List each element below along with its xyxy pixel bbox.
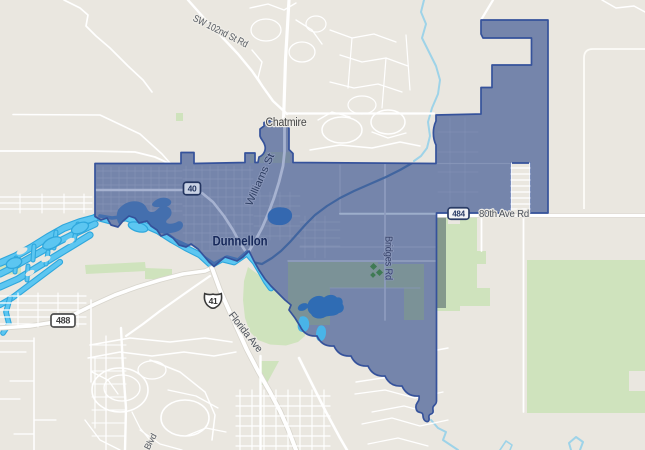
svg-text:Dunnellon: Dunnellon [213,234,268,249]
svg-text:488: 488 [56,316,70,326]
svg-text:Chatmire: Chatmire [266,117,307,129]
svg-text:Bridges Rd: Bridges Rd [383,236,394,280]
svg-text:80th Ave Rd: 80th Ave Rd [479,208,529,220]
svg-text:484: 484 [452,209,465,218]
svg-text:40: 40 [188,184,197,194]
svg-text:41: 41 [209,296,218,306]
